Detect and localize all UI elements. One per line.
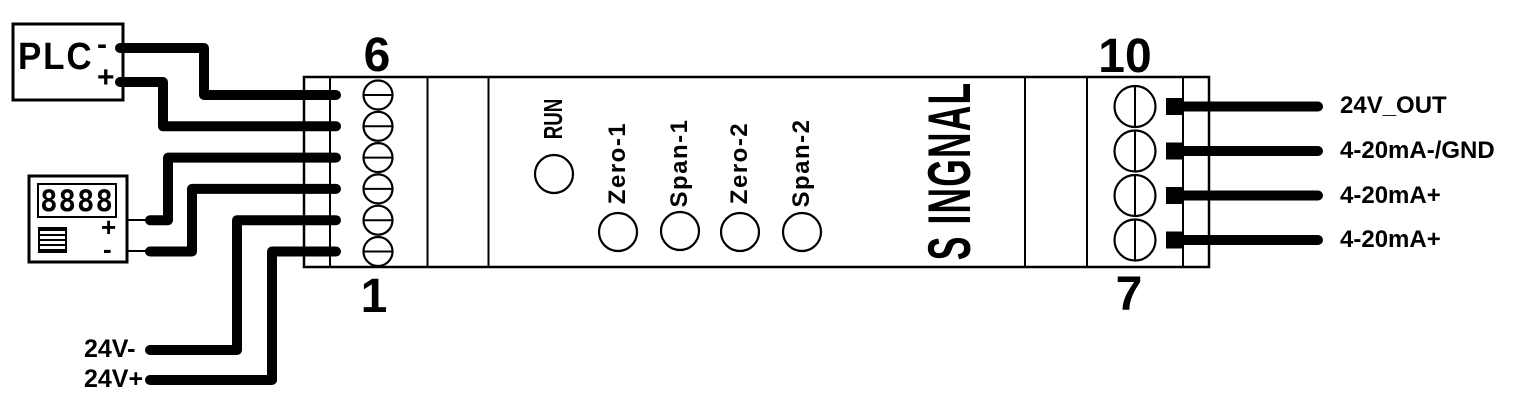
- lug-terminal10: [1166, 98, 1183, 115]
- terminal-number-1: 1: [344, 273, 404, 321]
- lug-terminal9: [1166, 143, 1183, 160]
- lug-terminal7: [1166, 232, 1183, 249]
- span-2-led-circle: [783, 213, 821, 251]
- wiring-graphics: [0, 0, 1515, 404]
- zero-1-led-circle: [599, 213, 637, 251]
- plc-label: PLC: [18, 38, 93, 76]
- output-label-24v-out: 24V_OUT: [1340, 94, 1447, 118]
- run-led-circle: [535, 155, 573, 193]
- supply-24v-minus-label: 24V-: [84, 337, 135, 362]
- plc-plus-sign: +: [97, 63, 115, 93]
- output-label-4-20ma-gnd: 4-20mA-/GND: [1340, 139, 1495, 163]
- output-label-4-20ma-plus-b: 4-20mA+: [1340, 228, 1441, 252]
- terminal-number-7: 7: [1099, 271, 1159, 319]
- module-side-label: S INGNAL: [920, 77, 982, 266]
- zero-1-label: Zero-1: [606, 108, 630, 218]
- lug-terminal8: [1166, 187, 1183, 204]
- span-1-label: Span-1: [668, 108, 692, 218]
- terminal-number-6: 6: [347, 32, 407, 80]
- wire-24v-minus-to-terminal2: [150, 220, 336, 350]
- plc-minus-sign: -: [97, 30, 107, 60]
- zero-2-led-circle: [721, 213, 759, 251]
- span-2-label: Span-2: [790, 108, 814, 218]
- supply-24v-plus-label: 24V+: [84, 367, 143, 392]
- display-vent-hatch: [38, 227, 67, 253]
- display-minus-sign: -: [103, 236, 112, 262]
- run-led-label: RUN: [540, 83, 566, 155]
- wire-24v-plus-to-terminal1: [150, 252, 336, 381]
- terminal-number-10: 10: [1095, 33, 1155, 81]
- wiring-diagram: PLC - + 8888 + - 6 1 10 7 RUN Zero-1 Spa…: [0, 0, 1515, 404]
- zero-2-label: Zero-2: [728, 108, 752, 218]
- output-label-4-20ma-plus-a: 4-20mA+: [1340, 184, 1441, 208]
